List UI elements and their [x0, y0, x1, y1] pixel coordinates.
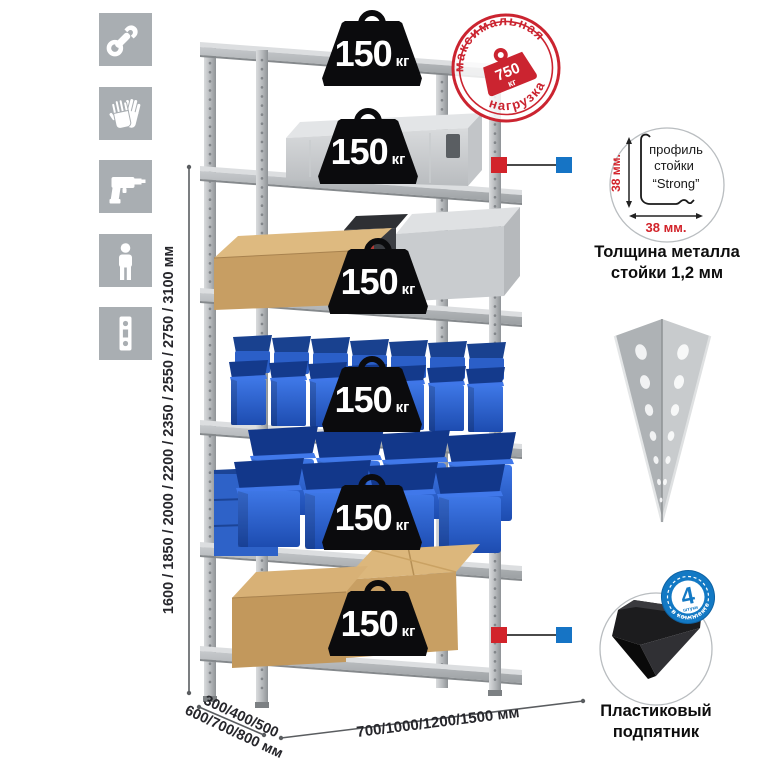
height-dimension-label: 1600 / 1850 / 2000 / 2200 / 2350 / 2550 … [161, 160, 179, 700]
dim-38mm-vertical: 38 мм. [609, 154, 623, 192]
drill-icon [99, 160, 152, 213]
callout-connector-bottom [491, 627, 572, 643]
callout-connector-top [491, 157, 572, 173]
height-dimension-line [187, 165, 191, 695]
red-marker [491, 627, 507, 643]
profile-label-2: стойки [654, 158, 694, 173]
wrench-icon [99, 13, 152, 66]
person-icon [99, 234, 152, 287]
blue-marker [556, 627, 572, 643]
shelf-load-weight-6: 150кг [326, 580, 430, 656]
shelf-load-weight-5: 150кг [320, 474, 424, 550]
red-marker [491, 157, 507, 173]
angle-post-image [615, 319, 710, 522]
profile-label-1: профиль [649, 142, 703, 157]
blue-marker [556, 157, 572, 173]
profile-label-3: “Strong” [653, 176, 700, 191]
shelf-load-weight-3: 150кг [326, 238, 430, 314]
product-infographic: максимальная нагрузка 750 кг [0, 0, 765, 765]
shelf-load-weight-4: 150кг [320, 356, 424, 432]
perforated-strip-icon [99, 307, 152, 360]
shelf-load-weight-1: 150кг [320, 10, 424, 86]
shelf-load-weight-2: 150кг [316, 108, 420, 184]
plastic-foot-caption: Пластиковый подпятник [583, 701, 729, 744]
dim-38mm-horizontal: 38 мм. [646, 220, 687, 235]
gloves-icon [99, 87, 152, 140]
metal-thickness-caption: Толщина металла стойки 1,2 мм [584, 242, 750, 285]
profile-detail-circle: 38 мм. 38 мм. профиль стойки “Strong” [609, 128, 724, 242]
